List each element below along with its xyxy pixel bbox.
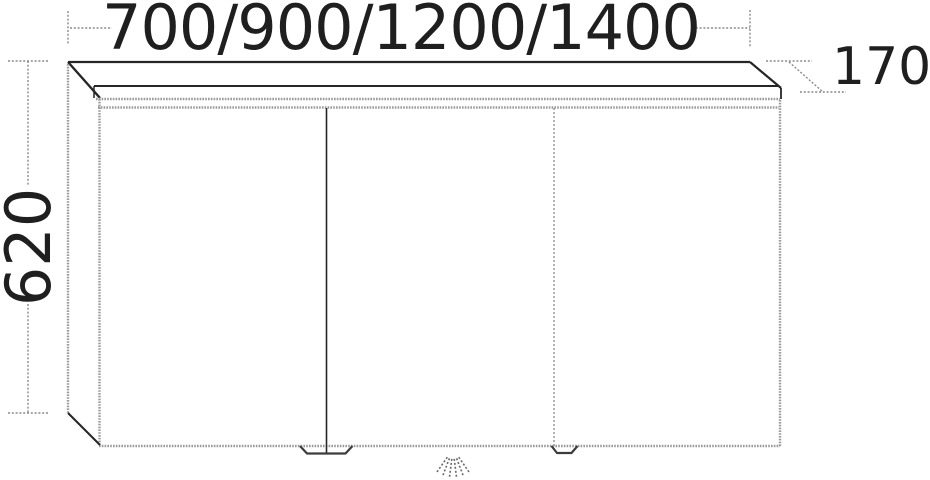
carcass-edges	[68, 64, 780, 446]
cornice-left-corner-edge	[68, 62, 100, 98]
width-dimension-label: 700/900/1200/1400	[102, 0, 700, 64]
mirror-cabinet-technical-drawing: 700/900/1200/1400 620 170	[0, 0, 930, 480]
mirror-cabinet	[68, 62, 781, 479]
depth-dimension-label: 170	[832, 37, 930, 97]
light-rays-icon	[436, 457, 469, 479]
light-cornice	[68, 62, 781, 99]
carcass-bottom-left-corner-edge	[68, 413, 100, 445]
height-dimension-label: 620	[0, 188, 65, 306]
depth-dimension-line	[789, 62, 823, 92]
technical-drawing-page: 700/900/1200/1400 620 170	[0, 0, 930, 480]
cornice-right-corner-edge	[750, 62, 781, 88]
